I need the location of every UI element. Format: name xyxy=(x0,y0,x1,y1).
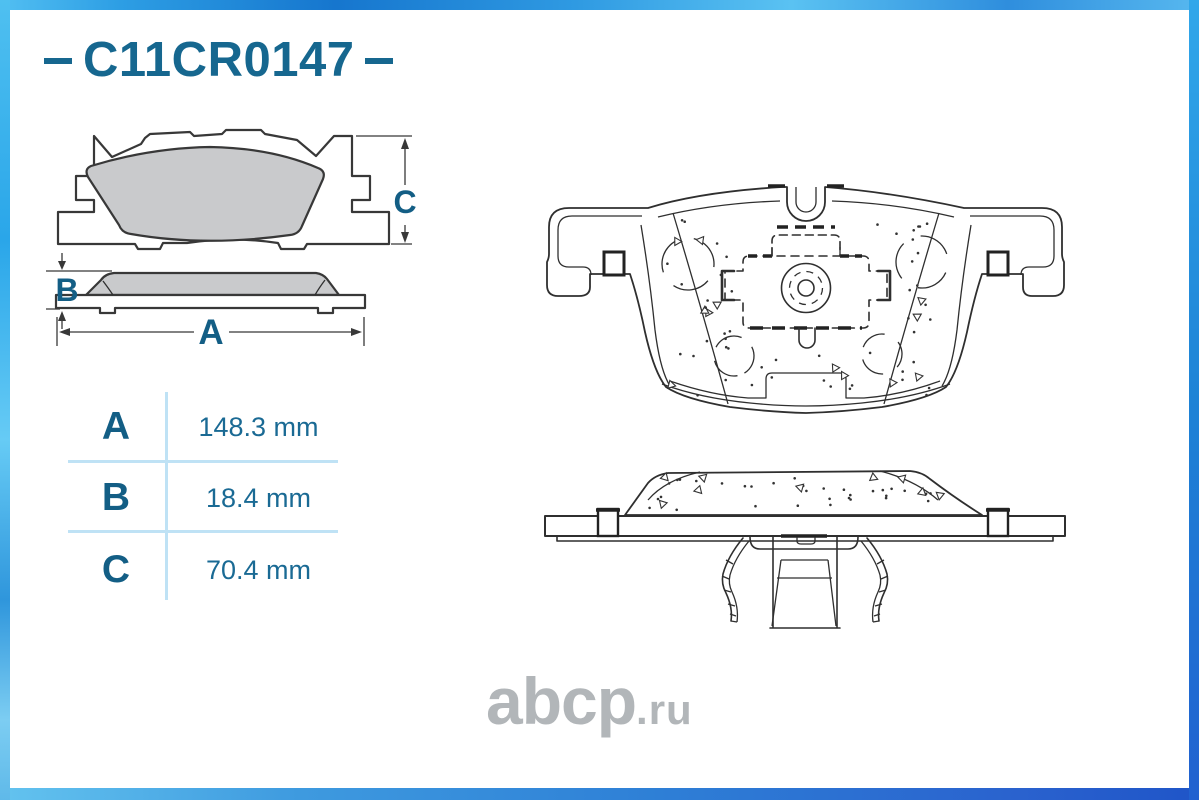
abutment-clip-right-side xyxy=(988,509,1008,536)
watermark-tld: .ru xyxy=(636,686,693,734)
friction-material xyxy=(87,147,324,241)
pad-side-view-drawing xyxy=(538,455,1075,640)
dimension-label-a: A xyxy=(198,313,223,352)
spring-leg-right xyxy=(861,538,888,622)
backing-plate-profile xyxy=(56,295,365,313)
abutment-clip-left-side xyxy=(598,509,618,536)
decorative-border-left xyxy=(0,0,10,800)
part-number: C11CR0147 xyxy=(44,36,393,85)
abutment-clip-right xyxy=(988,252,1008,275)
decorative-border-bottom xyxy=(0,788,1199,800)
table-row-value: 70.4 mm xyxy=(166,555,351,586)
spring-leg-left xyxy=(722,538,749,622)
table-divider-h1 xyxy=(68,460,338,463)
table-row-value: 18.4 mm xyxy=(166,483,351,514)
catalog-page: C11CR0147 C B A A 148.3 mm xyxy=(0,0,1199,800)
front-view-drawing: C xyxy=(40,116,432,262)
dash-decoration-left xyxy=(44,58,72,64)
shim-outline xyxy=(725,256,887,328)
table-row-value: 148.3 mm xyxy=(166,412,351,443)
dimension-label-c: C xyxy=(393,184,416,220)
table-row-label: C xyxy=(66,548,166,592)
part-number-text: C11CR0147 xyxy=(83,36,354,85)
decorative-border-right xyxy=(1189,0,1199,800)
table-row: C 70.4 mm xyxy=(66,539,351,601)
dimension-label-b: B xyxy=(55,272,78,308)
abutment-clip-left xyxy=(604,252,624,275)
pad-back-view-drawing xyxy=(535,172,1075,462)
table-row: B 18.4 mm xyxy=(66,467,351,529)
pad-outer-contour xyxy=(547,187,1064,413)
retainer-bracket xyxy=(770,537,840,628)
table-row: A 148.3 mm xyxy=(66,396,351,458)
friction-material-profile xyxy=(86,273,339,295)
watermark: abcp .ru xyxy=(486,668,693,734)
dash-decoration-right xyxy=(365,58,393,64)
table-row-label: A xyxy=(66,405,166,449)
table-row-label: B xyxy=(66,476,166,520)
decorative-border-top xyxy=(0,0,1199,10)
table-divider-h2 xyxy=(68,530,338,533)
piston-contact-circle xyxy=(782,264,831,313)
profile-view-drawing: B A xyxy=(30,248,430,352)
watermark-name: abcp xyxy=(486,668,636,734)
